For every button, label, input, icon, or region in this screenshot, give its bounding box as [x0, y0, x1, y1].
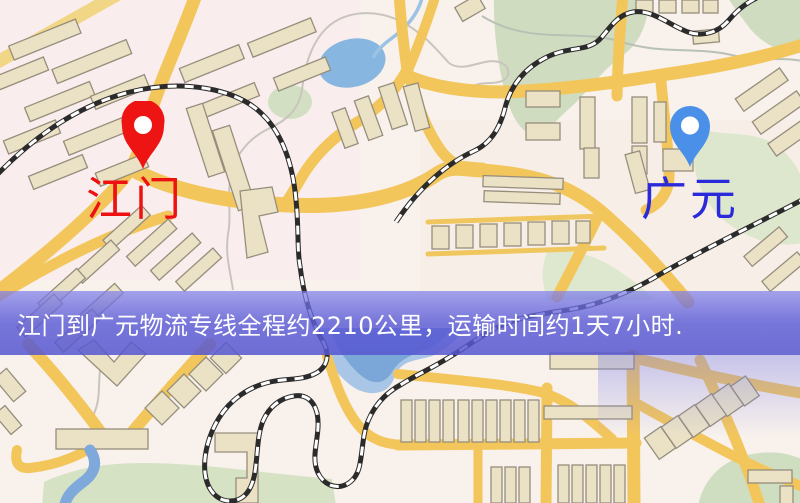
- route-info-text: 江门到广元物流专线全程约2210公里，运输时间约1天7小时.: [0, 306, 683, 341]
- blue-pin-icon: [667, 103, 713, 173]
- route-info-banner: 江门到广元物流专线全程约2210公里，运输时间约1天7小时.: [0, 291, 800, 355]
- map-canvas: [0, 0, 800, 503]
- origin-city-label: 江门: [86, 176, 184, 222]
- banner-glow: [598, 355, 800, 437]
- map-screenshot: 江门 广元 江门到广元物流专线全程约2210公里，运输时间约1天7小时.: [0, 0, 800, 503]
- red-pin-icon: [119, 101, 167, 175]
- destination-city-label: 广元: [641, 176, 739, 222]
